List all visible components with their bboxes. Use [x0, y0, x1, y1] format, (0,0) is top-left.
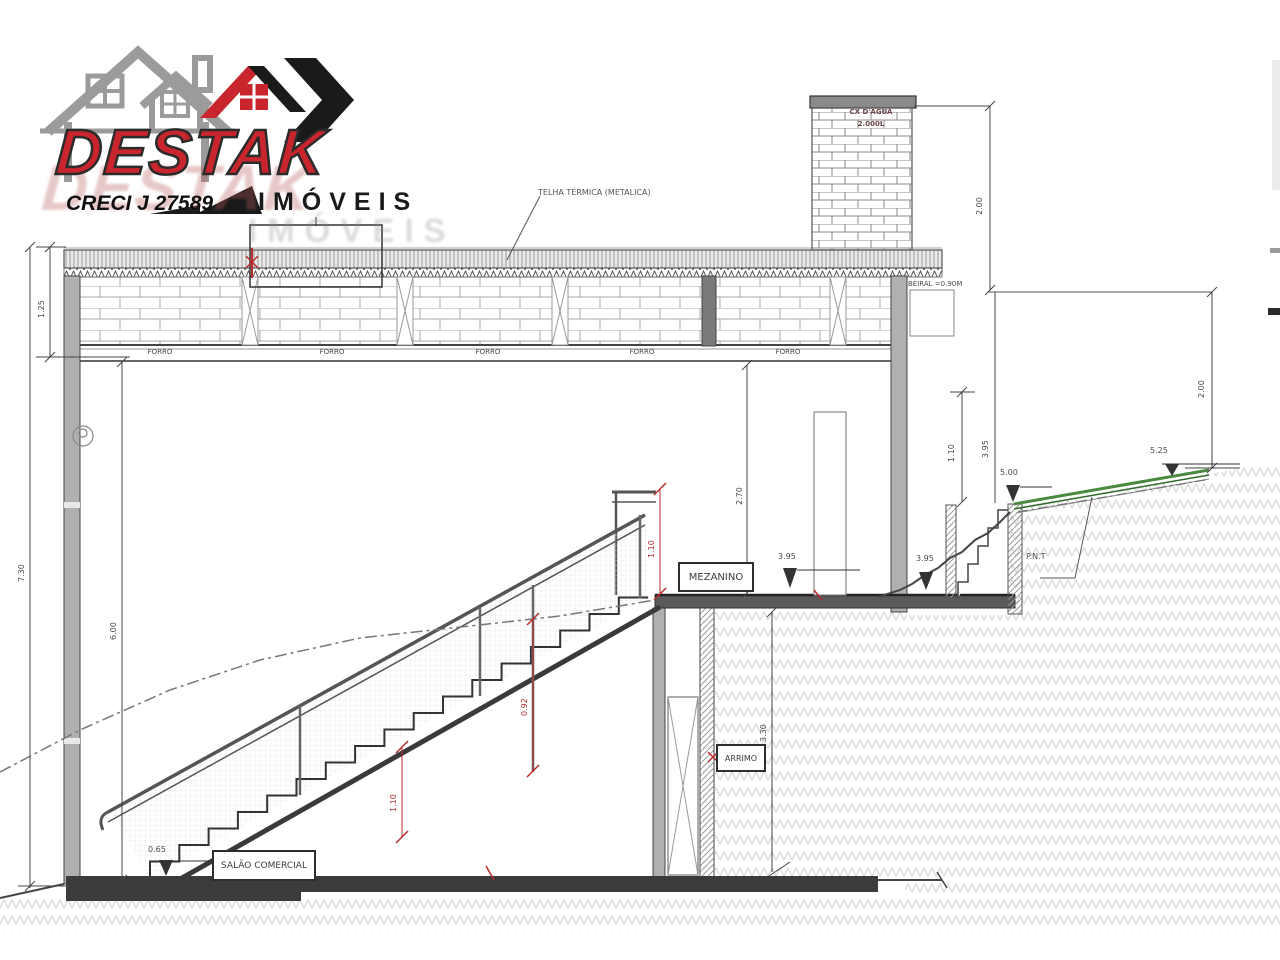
creci-text: CRECI J 27589: [66, 193, 213, 214]
mezzanine-label: MEZANINO: [678, 562, 754, 592]
brand-text: DESTAK: [54, 120, 329, 184]
dim-tank-height: 2.00: [976, 197, 984, 215]
tank-label-2: 2.000L: [838, 121, 904, 128]
roof-material-label: TELHA TÉRMICA (METALICA): [538, 189, 651, 197]
dim-rail-top: 1.10: [648, 540, 656, 558]
mezz-door-opening: [814, 412, 846, 595]
dim-ext-rail: 1.10: [948, 444, 956, 462]
dim-ext-offset: 3.95: [982, 440, 990, 458]
edge-artifacts: [1268, 60, 1280, 315]
dim-right-drop: 2.00: [1198, 380, 1206, 398]
level-hall: 0.65: [148, 846, 166, 854]
blueprint-page: DESTAK IMÓVEIS DESTAK CRECI J 27589 IMÓV…: [0, 0, 1280, 960]
forro-label: FORRO: [768, 349, 808, 356]
roof-post: [702, 276, 716, 346]
dim-roof-band: 1.25: [38, 300, 46, 318]
floor: [0, 872, 947, 901]
level-terrace: 5.00: [1000, 469, 1018, 477]
pnt-label: P.N.T: [1026, 553, 1046, 561]
forro-label: FORRO: [140, 349, 180, 356]
dim-mezz-clear: 2.70: [736, 487, 744, 505]
level-mezz: 3.95: [778, 553, 796, 561]
forro-label: FORRO: [312, 349, 352, 356]
subtitle-text: IMÓVEIS: [258, 190, 418, 215]
commercial-hall-label: SALÃO COMERCIAL: [212, 850, 316, 881]
eave-label: BEIRAL =0.90M: [908, 281, 962, 288]
dim-arrimo-height: 3.30: [760, 724, 768, 742]
forro-label: FORRO: [468, 349, 508, 356]
dim-total-height: 7.30: [18, 564, 26, 582]
subtitle-shadow-text: IMÓVEIS: [248, 214, 456, 247]
eave-detail: [910, 290, 1212, 336]
level-ground-right: 3.95: [916, 555, 934, 563]
dim-hall-height: 6.00: [110, 622, 118, 640]
level-top: 5.25: [1150, 447, 1168, 455]
dim-rail-low: 1.10: [390, 794, 398, 812]
staircase: [101, 515, 660, 895]
forro-label: FORRO: [622, 349, 662, 356]
dim-rail-mid: 0.92: [521, 698, 529, 716]
tank-label-1: CX D'ÁGUA: [838, 109, 904, 116]
retaining-wall-label: ARRIMO: [716, 744, 766, 772]
